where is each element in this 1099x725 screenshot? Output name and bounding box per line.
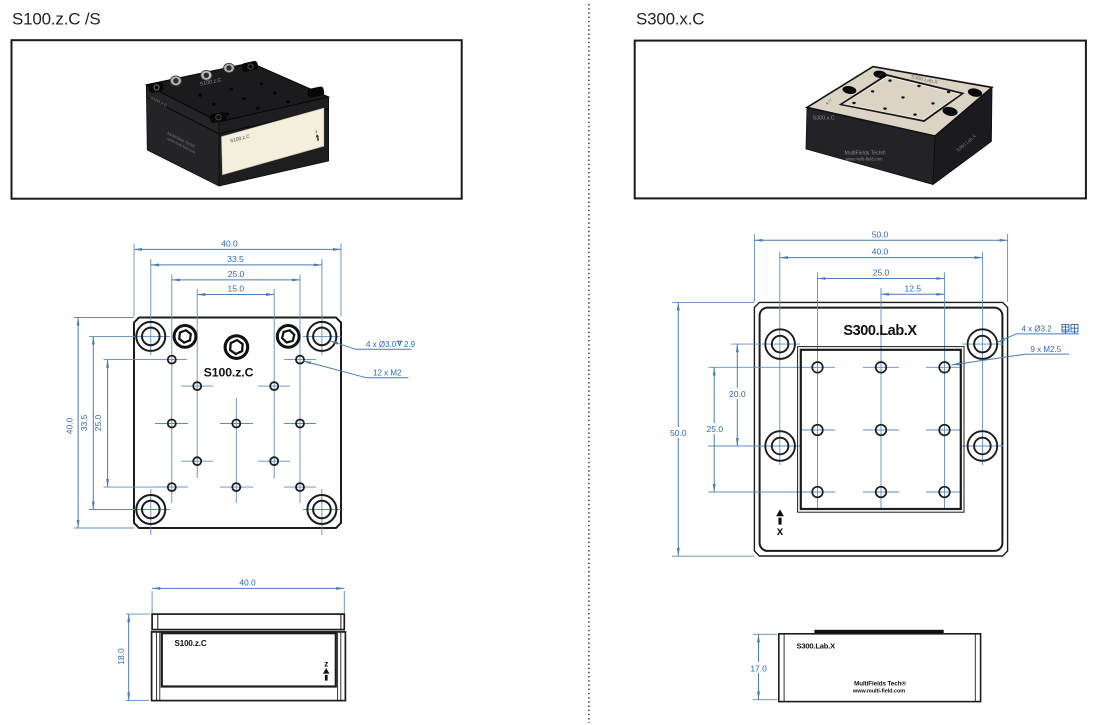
svg-text:50.0: 50.0 bbox=[872, 229, 889, 239]
svg-text:25.0: 25.0 bbox=[93, 414, 103, 431]
svg-text:S300.Lab.X: S300.Lab.X bbox=[843, 323, 917, 339]
svg-text:S100.z.C: S100.z.C bbox=[204, 366, 254, 380]
svg-text:S300.x.C: S300.x.C bbox=[813, 116, 835, 122]
svg-text:12.5: 12.5 bbox=[905, 283, 922, 293]
svg-text:18.0: 18.0 bbox=[116, 648, 126, 665]
svg-text:S300.Lab.X: S300.Lab.X bbox=[797, 642, 836, 651]
svg-text:15.0: 15.0 bbox=[228, 284, 245, 294]
svg-text:40.0: 40.0 bbox=[872, 247, 889, 257]
svg-text:50.0: 50.0 bbox=[670, 428, 687, 438]
svg-text:9 x M2.5: 9 x M2.5 bbox=[1031, 345, 1062, 354]
svg-text:www.multi-field.com: www.multi-field.com bbox=[846, 157, 884, 162]
svg-text:MultiFields Tech®: MultiFields Tech® bbox=[845, 150, 886, 157]
svg-text:25.0: 25.0 bbox=[873, 268, 890, 278]
svg-text:S300.x.C: S300.x.C bbox=[636, 10, 704, 29]
svg-text:40.0: 40.0 bbox=[221, 239, 238, 249]
svg-text:x: x bbox=[777, 526, 784, 538]
svg-text:12 x M2: 12 x M2 bbox=[373, 369, 402, 378]
svg-text:S100.z.C /S: S100.z.C /S bbox=[12, 10, 101, 29]
svg-text:33.5: 33.5 bbox=[79, 414, 89, 431]
svg-text:33.5: 33.5 bbox=[227, 254, 244, 264]
svg-text:www.multi-field.com: www.multi-field.com bbox=[852, 689, 905, 695]
svg-text:4 x Ø3.0: 4 x Ø3.0 bbox=[366, 340, 397, 349]
svg-text:S100.z.C: S100.z.C bbox=[175, 639, 207, 648]
svg-text:4 x Ø3.2: 4 x Ø3.2 bbox=[1022, 325, 1053, 334]
svg-text:40.0: 40.0 bbox=[65, 417, 75, 434]
svg-text:40.0: 40.0 bbox=[239, 578, 256, 588]
svg-text:20.0: 20.0 bbox=[729, 389, 746, 399]
svg-text:25.0: 25.0 bbox=[707, 424, 724, 434]
svg-text:25.0: 25.0 bbox=[228, 269, 245, 279]
svg-text:2.9: 2.9 bbox=[404, 340, 416, 349]
svg-text:17.0: 17.0 bbox=[750, 664, 767, 674]
svg-text:MultiFields Tech®: MultiFields Tech® bbox=[854, 680, 906, 688]
svg-text:z: z bbox=[324, 659, 328, 669]
